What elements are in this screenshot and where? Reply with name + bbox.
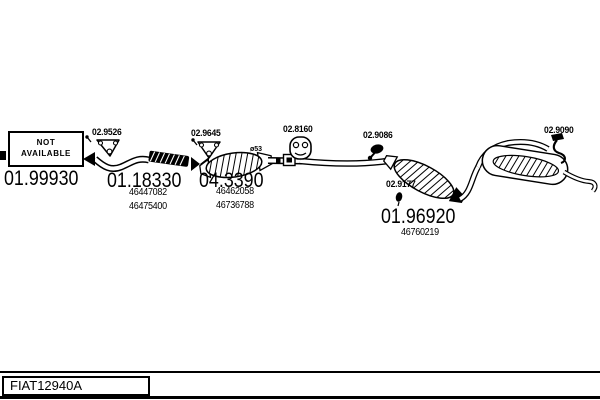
- clamp-icon: [368, 143, 385, 160]
- not-available-line2: AVAILABLE: [21, 149, 71, 160]
- cat-gasket-icon: [191, 138, 220, 158]
- grommet-part-code[interactable]: 02.9177: [386, 179, 416, 189]
- rear-muffler-art: [480, 143, 570, 186]
- flex-pipe-art: [148, 151, 189, 167]
- rubber-hanger-part-code[interactable]: 02.8160: [283, 124, 313, 134]
- centre-pipe-art: [300, 161, 391, 164]
- mid-muffler-part-code[interactable]: 01.96920: [381, 205, 455, 229]
- tailpipe-art: [564, 172, 595, 191]
- catalytic-converter-oe-number: 46736788: [216, 200, 254, 211]
- pipe-diameter-note: ø53: [250, 146, 262, 153]
- front-pipe-part-code[interactable]: 01.99930: [4, 167, 78, 191]
- diagram-art: [0, 0, 600, 400]
- not-available-box: NOT AVAILABLE: [8, 131, 84, 167]
- clamp-part-code[interactable]: 02.9086: [363, 130, 393, 140]
- rubber-hanger-icon: [290, 137, 311, 159]
- front-gasket-icon: [85, 135, 119, 156]
- diagram-code: FIAT12940A: [10, 378, 82, 393]
- mid-muffler-oe-number: 46760219: [401, 227, 439, 238]
- grommet-icon: [395, 192, 403, 206]
- cat-gasket-part-code[interactable]: 02.9645: [191, 128, 221, 138]
- catalytic-converter-oe-number: 46462058: [216, 186, 254, 197]
- diagram-code-box[interactable]: FIAT12940A: [2, 376, 150, 396]
- rear-hanger-part-code[interactable]: 02.9090: [544, 125, 574, 135]
- not-available-line1: NOT: [37, 138, 56, 149]
- flex-pipe-oe-number: 46447082: [129, 187, 167, 198]
- front-gasket-part-code[interactable]: 02.9526: [92, 127, 122, 137]
- flex-pipe-oe-number: 46475400: [129, 201, 167, 212]
- footer-bar: FIAT12940A: [0, 371, 600, 399]
- exhaust-system-diagram: NOT AVAILABLE 01.99930 02.9526 01.18330 …: [0, 0, 600, 400]
